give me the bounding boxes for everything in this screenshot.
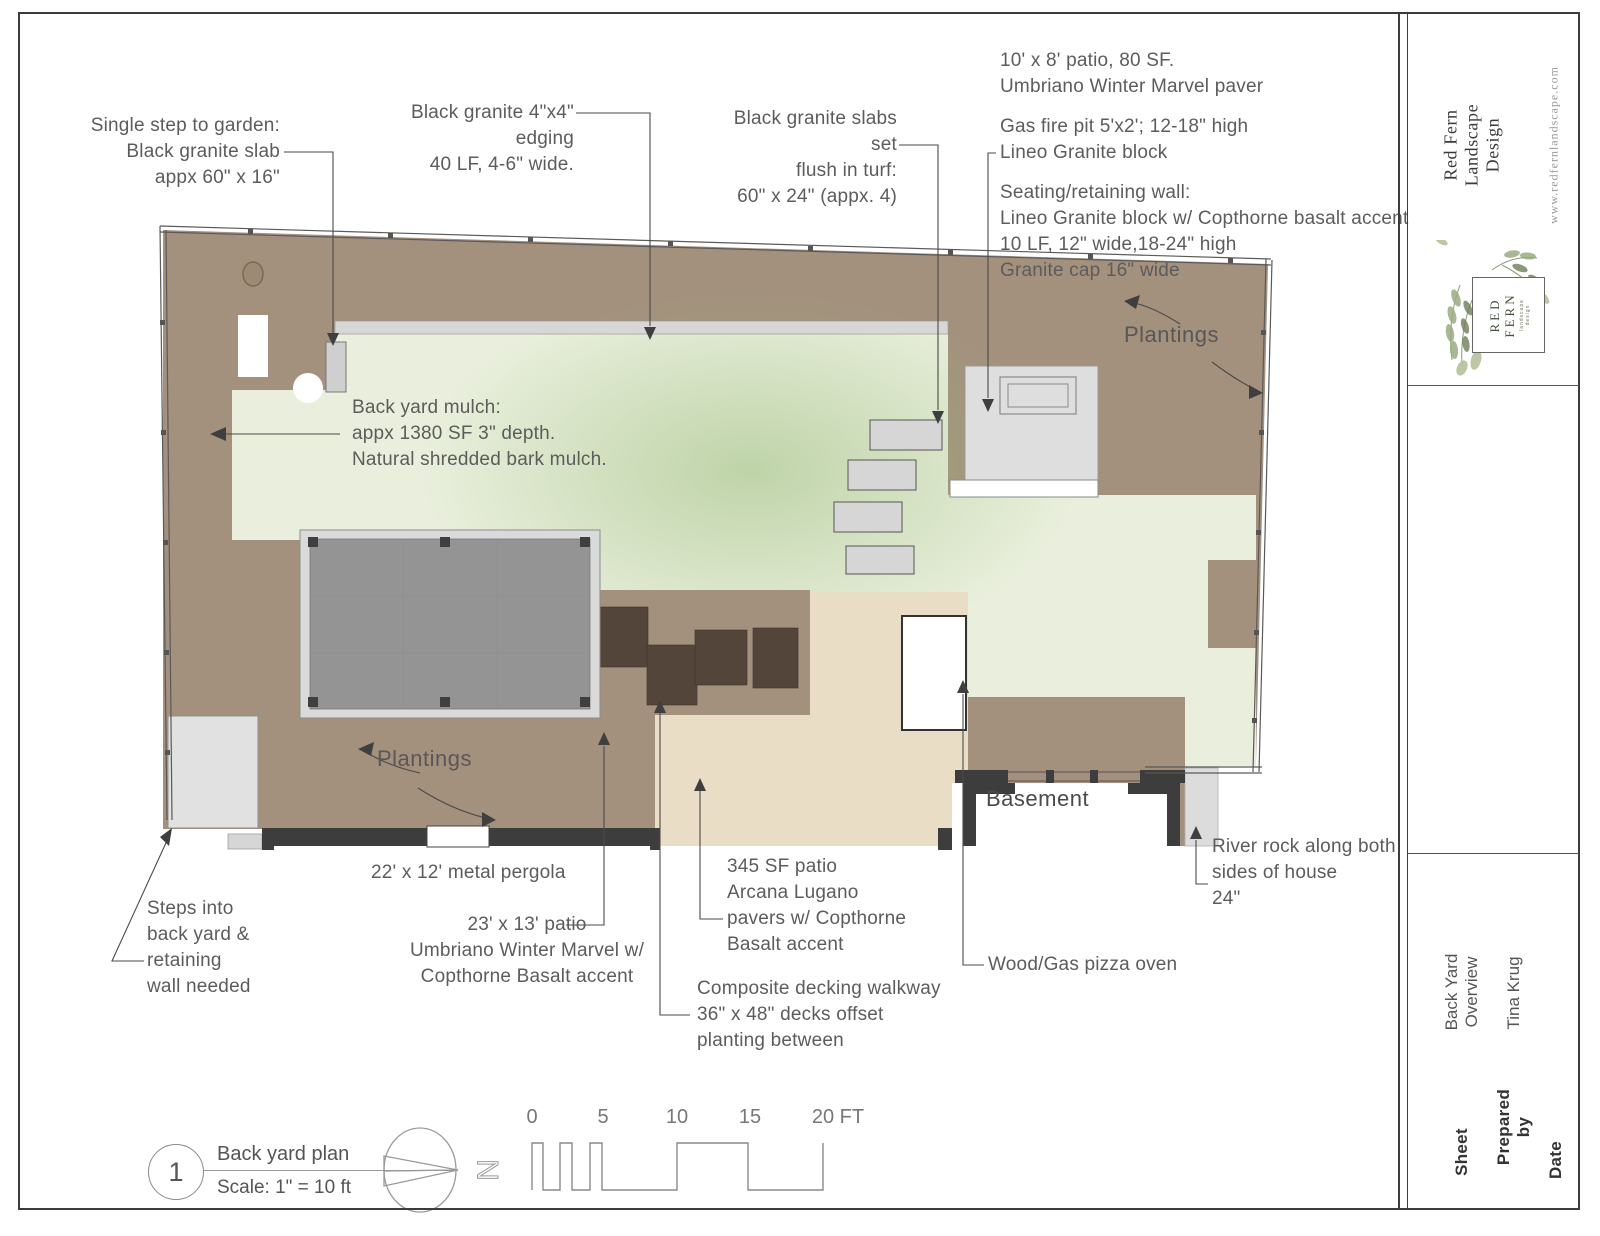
logo-wordmark: RED FERN bbox=[1487, 292, 1517, 337]
sidebar-divider-outer bbox=[1398, 12, 1400, 1209]
sheet-border bbox=[18, 12, 1580, 1210]
sheet-value: Back Yard Overview bbox=[1442, 954, 1482, 1031]
sheet: N Single step to garden: Black granite s… bbox=[0, 0, 1600, 1236]
logo-subtitle: landscape design bbox=[1519, 292, 1531, 337]
prepared-by-value: Tina Krug bbox=[1504, 956, 1524, 1029]
sidebar-section-divider-2 bbox=[1408, 853, 1579, 854]
prepared-by-label: Prepared by bbox=[1494, 1084, 1534, 1170]
company-website: www.redfernlandscape.com bbox=[1547, 66, 1562, 224]
company-name: Red Fern Landscape Design bbox=[1441, 81, 1504, 209]
sidebar-divider-inner bbox=[1407, 12, 1408, 1209]
date-label: Date bbox=[1546, 1141, 1566, 1179]
sidebar-section-divider-1 bbox=[1408, 385, 1579, 386]
logo-frame: RED FERN landscape design bbox=[1472, 277, 1545, 353]
sheet-label: Sheet bbox=[1452, 1128, 1472, 1176]
